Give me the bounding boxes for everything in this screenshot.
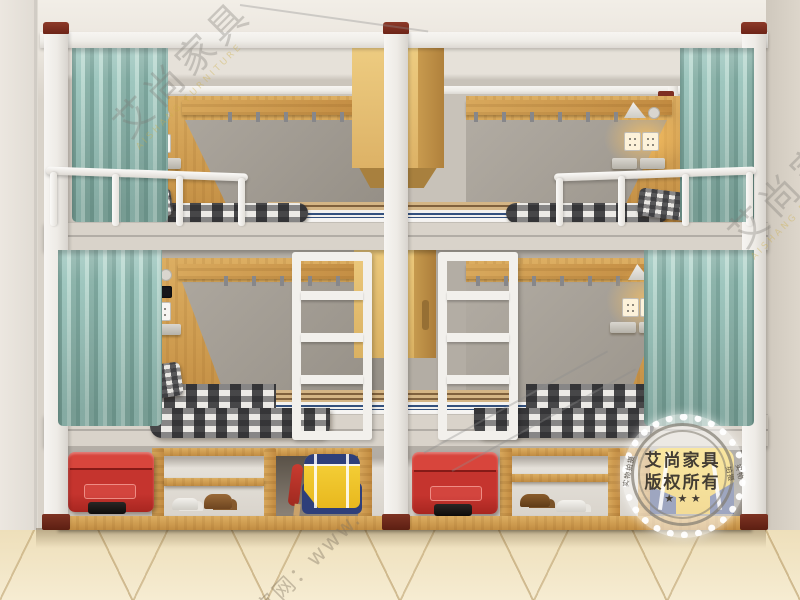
wall-corner-line — [34, 0, 37, 532]
brown-loafers — [520, 494, 550, 507]
guardrail-post — [176, 176, 183, 226]
cubby-divider — [500, 448, 512, 516]
ladder-rung — [301, 291, 363, 300]
back-top-rail — [408, 86, 698, 94]
suitcase-base-handle — [88, 502, 126, 514]
curtain-top-left — [72, 48, 168, 222]
guardrail-post — [618, 176, 625, 226]
post-foot-center — [382, 514, 410, 530]
right-wall — [766, 0, 800, 600]
power-outlet-left — [622, 298, 639, 317]
guardrail-post — [112, 174, 119, 226]
stamp-side-text-right: 实物拍摄 — [723, 463, 747, 489]
duffel-strap — [314, 454, 317, 508]
ladder-rung — [301, 333, 363, 342]
post-cap-right — [741, 22, 767, 34]
wall-shelf-a — [610, 322, 636, 333]
bunk-bed-product-photo: 艾尚家具 AISHANG FURNITURE 艾尚家具 AISHANG FURN… — [0, 0, 800, 600]
power-outlet-left — [624, 132, 641, 151]
copyright-stamp: 艾尚家具 版权所有 ★ ★ ★ 实物拍摄 实物拍摄 — [622, 414, 746, 538]
cubby-divider — [608, 448, 620, 516]
white-sneakers — [172, 498, 198, 510]
guardrail-post — [746, 172, 753, 226]
ladder-rung — [447, 291, 509, 300]
guardrail-post — [50, 172, 57, 226]
duffel-bag-top-band — [304, 454, 360, 464]
brown-shoes — [204, 494, 232, 509]
cubby-shelf — [164, 478, 264, 486]
post-foot-left — [42, 514, 70, 530]
suitcase-front-plate — [430, 486, 482, 501]
cabinet-side — [418, 42, 444, 168]
left-wall — [0, 0, 38, 600]
curtain-bottom-left — [58, 250, 162, 426]
ladder-left — [292, 252, 372, 440]
suitcase-lid-seam — [70, 468, 152, 470]
wall-shelf-b — [640, 158, 665, 169]
suitcase-base-handle — [434, 504, 472, 516]
ladder-rung — [447, 375, 509, 384]
suitcase-front-plate — [84, 484, 136, 499]
cabinet-handle — [422, 300, 429, 330]
ladder-rung — [301, 375, 363, 384]
cubby-shelf — [512, 474, 608, 482]
cubby-divider — [264, 448, 276, 516]
duffel-strap — [346, 454, 349, 508]
ladder-rung — [447, 333, 509, 342]
white-shoes — [556, 500, 586, 512]
guardrail-post — [556, 178, 563, 226]
guardrail-post — [238, 178, 245, 226]
power-outlet-right — [642, 132, 659, 151]
ladder-right — [438, 252, 518, 440]
post-cap-left — [43, 22, 69, 34]
coat-hooks — [474, 112, 624, 122]
wall-shelf-a — [612, 158, 637, 169]
stamp-stars: ★ ★ ★ — [622, 492, 743, 505]
frame-post-center — [384, 32, 408, 528]
guardrail-post — [682, 174, 689, 226]
curtain-bottom-right — [644, 250, 754, 426]
curtain-top-right — [680, 48, 754, 222]
lamp-wall-base — [648, 107, 660, 119]
